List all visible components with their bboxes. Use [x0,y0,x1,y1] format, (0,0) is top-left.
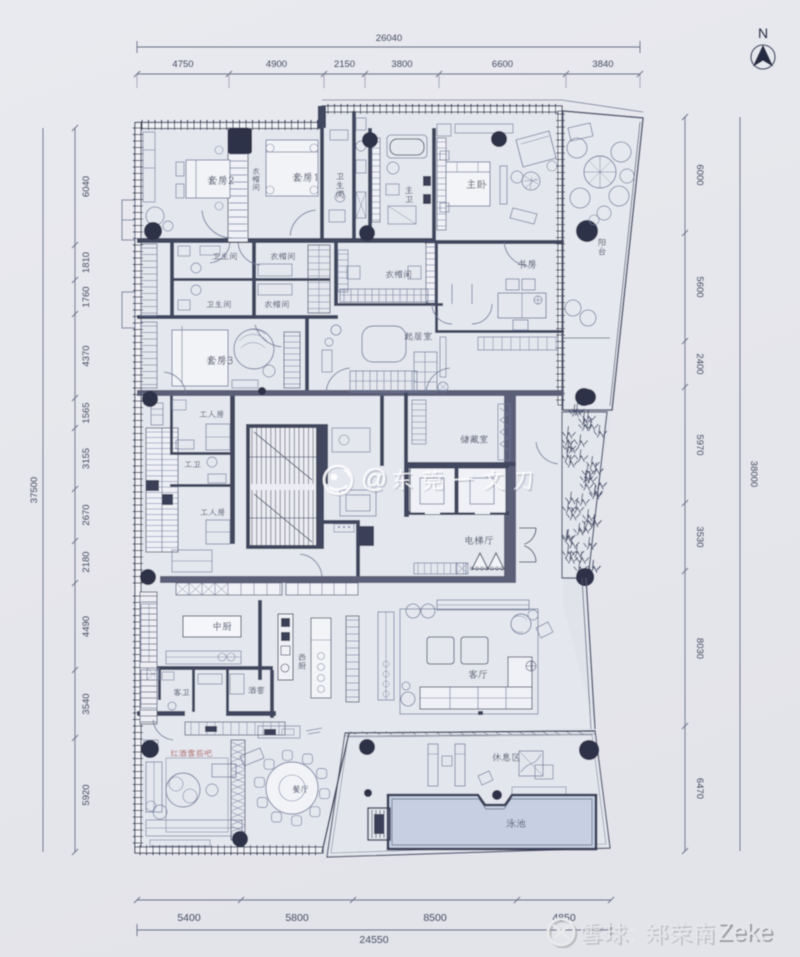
svg-text:37500: 37500 [29,477,40,503]
svg-text:4370: 4370 [81,345,92,366]
svg-text:1810: 1810 [81,252,92,273]
svg-text:1760: 1760 [81,286,92,307]
svg-text:38000: 38000 [748,461,759,487]
svg-text:1565: 1565 [81,402,92,423]
svg-text:2150: 2150 [334,59,355,70]
svg-text:3800: 3800 [391,59,412,70]
svg-text:3840: 3840 [592,59,613,70]
svg-text:Zeke: Zeke [717,918,773,946]
svg-text:6600: 6600 [492,59,513,70]
svg-text:3540: 3540 [81,693,92,714]
svg-text:2670: 2670 [81,504,92,525]
svg-text:8030: 8030 [694,638,705,659]
svg-text:5970: 5970 [694,434,705,455]
svg-text:2400: 2400 [694,353,705,374]
svg-text:@: @ [361,463,387,493]
svg-text:5600: 5600 [694,276,705,297]
svg-text:N: N [758,25,768,41]
svg-text:4750: 4750 [172,59,193,70]
svg-text:4490: 4490 [81,616,92,637]
svg-text:24550: 24550 [359,934,388,946]
svg-text:3530: 3530 [694,526,705,547]
svg-text:5400: 5400 [177,912,201,924]
svg-text:6470: 6470 [694,778,705,799]
svg-text:2180: 2180 [81,551,92,572]
svg-text:3155: 3155 [81,448,92,469]
svg-text:8500: 8500 [423,912,447,924]
svg-text:5920: 5920 [81,784,92,805]
svg-text:4900: 4900 [266,59,287,70]
svg-text:6000: 6000 [694,164,705,185]
svg-text:6040: 6040 [81,176,92,197]
svg-text:26040: 26040 [376,33,402,44]
svg-text:5800: 5800 [285,912,309,924]
